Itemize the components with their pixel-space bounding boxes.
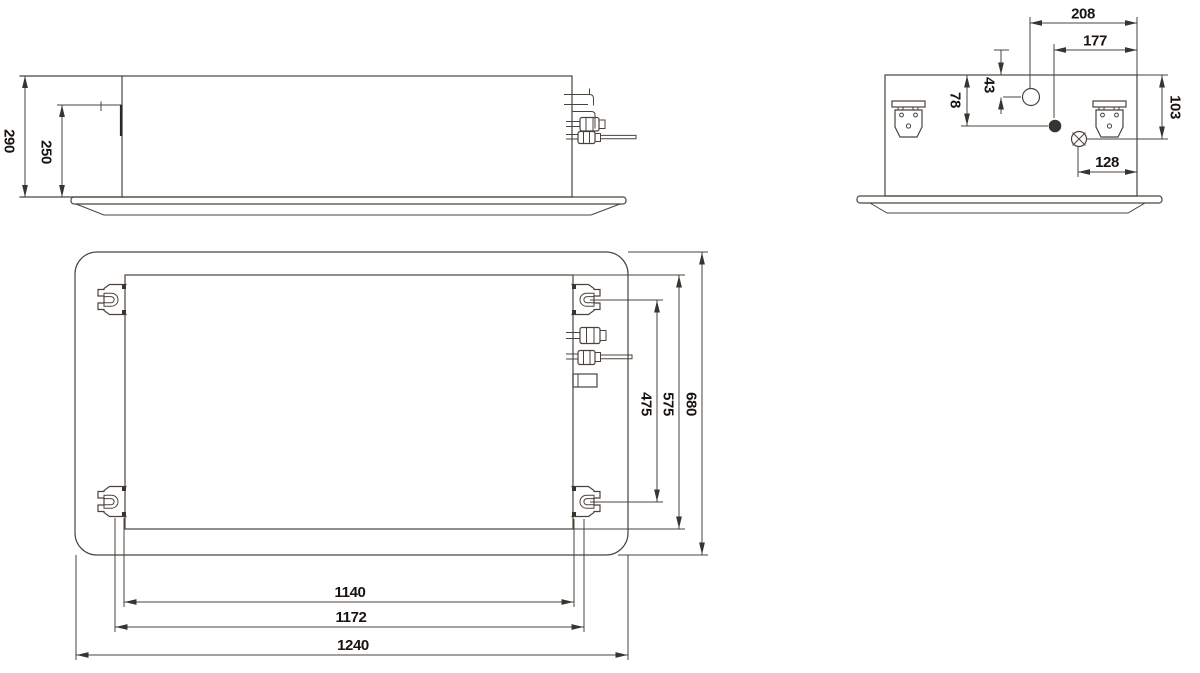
plan-bracket-bottom-left <box>98 487 126 517</box>
plan-dim-1240: 1240 <box>77 637 628 655</box>
dim-label-103: 103 <box>1167 95 1184 119</box>
side-knockout-circle <box>1072 132 1087 147</box>
front-dim-250: 250 <box>38 105 63 197</box>
plan-extension-lines <box>76 252 708 660</box>
dim-label-1240: 1240 <box>337 637 369 654</box>
plan-bracket-top-left <box>98 285 126 315</box>
technical-drawing-page: 290 250 <box>0 0 1200 673</box>
front-refrigerant-pipe-small <box>566 132 636 144</box>
dim-label-177: 177 <box>1083 33 1107 50</box>
front-view: 290 250 <box>1 76 637 215</box>
plan-dim-575: 575 <box>660 276 680 529</box>
plan-dim-1172: 1172 <box>116 609 584 627</box>
plan-dim-680: 680 <box>683 253 703 555</box>
side-dim-43: 43 <box>981 57 1002 114</box>
plan-pipe-fitting-large <box>566 328 606 344</box>
side-dim-103: 103 <box>1162 76 1184 139</box>
plan-dim-475: 475 <box>638 301 658 502</box>
dim-label-1172: 1172 <box>336 609 367 626</box>
plan-view: 475 575 680 1140 1172 1240 <box>75 252 708 660</box>
side-dot-filled <box>1049 120 1062 133</box>
dim-label-208: 208 <box>1071 6 1095 23</box>
dim-label-680: 680 <box>683 392 700 416</box>
plan-dim-1140: 1140 <box>125 584 574 602</box>
side-decoration-panel <box>857 196 1162 213</box>
front-left-hanger-bracket <box>57 102 122 137</box>
plan-body-outline <box>125 275 573 529</box>
front-body-outline <box>20 76 572 197</box>
dim-label-475: 475 <box>638 392 655 416</box>
dim-label-128: 128 <box>1095 154 1119 171</box>
plan-pipe-fitting-small <box>566 351 632 365</box>
side-right-bracket <box>1093 101 1126 137</box>
plan-drain-connection <box>573 374 597 387</box>
plan-panel-outline <box>75 252 628 555</box>
side-dim-177: 177 <box>1054 33 1137 51</box>
side-dim-78: 78 <box>947 76 968 126</box>
dim-label-250: 250 <box>38 140 55 164</box>
side-view: 208 177 43 78 103 128 <box>857 6 1184 214</box>
dim-label-78: 78 <box>947 92 964 108</box>
drawing-canvas: 290 250 <box>0 0 1200 673</box>
side-body-outline <box>885 75 1137 196</box>
dim-label-290: 290 <box>1 129 18 153</box>
side-left-bracket <box>892 101 925 137</box>
dim-label-43: 43 <box>981 77 998 93</box>
side-dim-208: 208 <box>1030 6 1137 24</box>
side-hole-open <box>1023 89 1040 106</box>
dim-label-1140: 1140 <box>335 584 366 601</box>
front-decoration-panel <box>71 197 626 215</box>
dim-label-575: 575 <box>660 392 677 416</box>
side-dim-128: 128 <box>1078 154 1137 172</box>
front-dim-290: 290 <box>1 76 26 197</box>
